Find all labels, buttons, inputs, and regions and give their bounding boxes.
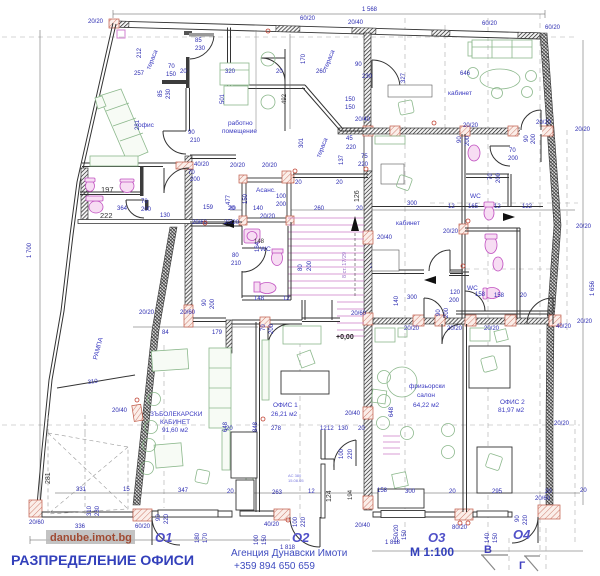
svg-text:150: 150 bbox=[262, 534, 268, 545]
svg-text:20/20: 20/20 bbox=[577, 319, 593, 325]
svg-text:327: 327 bbox=[401, 72, 407, 83]
svg-text:+359 894 650 659: +359 894 650 659 bbox=[234, 561, 315, 572]
svg-text:20: 20 bbox=[520, 293, 527, 299]
svg-text:20/20: 20/20 bbox=[224, 220, 240, 226]
svg-text:20/20: 20/20 bbox=[554, 421, 570, 427]
svg-text:179: 179 bbox=[212, 330, 223, 336]
svg-text:70: 70 bbox=[141, 199, 148, 205]
svg-text:130: 130 bbox=[338, 426, 349, 432]
svg-text:40/20: 40/20 bbox=[556, 324, 572, 330]
svg-text:331: 331 bbox=[76, 487, 87, 493]
svg-text:20: 20 bbox=[449, 489, 456, 495]
svg-text:помещение: помещение bbox=[222, 128, 257, 135]
svg-text:301: 301 bbox=[299, 137, 305, 148]
svg-text:20/20: 20/20 bbox=[443, 229, 459, 235]
svg-text:197: 197 bbox=[101, 185, 114, 194]
svg-text:150: 150 bbox=[166, 72, 177, 78]
svg-text:220: 220 bbox=[348, 448, 354, 459]
svg-text:40/20: 40/20 bbox=[264, 522, 280, 528]
svg-text:165: 165 bbox=[468, 204, 479, 210]
svg-text:80/20: 80/20 bbox=[452, 525, 468, 531]
svg-text:260: 260 bbox=[314, 206, 325, 212]
svg-text:60/20: 60/20 bbox=[300, 16, 316, 22]
svg-text:100: 100 bbox=[293, 516, 299, 527]
svg-text:130: 130 bbox=[160, 213, 171, 219]
svg-text:170: 170 bbox=[203, 532, 209, 543]
svg-text:90: 90 bbox=[457, 136, 463, 143]
svg-text:158: 158 bbox=[377, 488, 388, 494]
svg-text:230: 230 bbox=[195, 46, 206, 52]
svg-text:200: 200 bbox=[496, 172, 502, 183]
svg-text:О1: О1 bbox=[155, 530, 172, 545]
svg-text:150: 150 bbox=[345, 105, 356, 111]
svg-text:295: 295 bbox=[492, 489, 503, 495]
svg-text:90: 90 bbox=[515, 515, 521, 522]
svg-text:20/20: 20/20 bbox=[88, 19, 104, 25]
svg-text:26,21 м2: 26,21 м2 bbox=[271, 411, 298, 418]
svg-text:257: 257 bbox=[134, 71, 145, 77]
svg-text:15.08.05: 15.08.05 bbox=[288, 478, 304, 483]
svg-text:212: 212 bbox=[137, 47, 143, 58]
svg-text:15: 15 bbox=[123, 487, 130, 493]
svg-text:60/20: 60/20 bbox=[482, 21, 498, 27]
svg-text:В: В bbox=[484, 544, 492, 556]
svg-text:Асанс.: Асанс. bbox=[256, 187, 276, 194]
svg-text:91,60 м2: 91,60 м2 bbox=[162, 427, 189, 434]
svg-text:1 700: 1 700 bbox=[27, 242, 33, 258]
svg-text:124: 124 bbox=[326, 490, 333, 502]
svg-text:20/20: 20/20 bbox=[139, 310, 155, 316]
svg-text:200: 200 bbox=[531, 133, 537, 144]
svg-text:20/20: 20/20 bbox=[484, 326, 500, 332]
svg-text:20/20: 20/20 bbox=[575, 127, 591, 133]
svg-text:64,22 м2: 64,22 м2 bbox=[413, 402, 440, 409]
svg-text:20/20: 20/20 bbox=[260, 214, 276, 220]
svg-text:158: 158 bbox=[475, 292, 486, 298]
svg-text:220: 220 bbox=[346, 145, 357, 151]
svg-text:12: 12 bbox=[283, 296, 290, 302]
svg-text:О3: О3 bbox=[428, 530, 446, 545]
svg-text:90: 90 bbox=[188, 130, 195, 136]
svg-text:20: 20 bbox=[580, 488, 587, 494]
svg-text:158: 158 bbox=[494, 293, 505, 299]
svg-text:320: 320 bbox=[225, 69, 236, 75]
svg-text:20: 20 bbox=[276, 69, 283, 75]
svg-text:150: 150 bbox=[493, 532, 499, 543]
svg-text:1 568: 1 568 bbox=[362, 7, 378, 13]
svg-text:кабинет: кабинет bbox=[448, 89, 472, 97]
svg-text:200: 200 bbox=[444, 307, 450, 318]
svg-text:работно: работно bbox=[228, 119, 253, 127]
svg-text:848: 848 bbox=[253, 421, 259, 432]
svg-text:210: 210 bbox=[231, 261, 242, 267]
svg-text:194: 194 bbox=[348, 489, 354, 500]
svg-text:263: 263 bbox=[272, 490, 283, 496]
svg-text:кабинет: кабинет bbox=[396, 219, 420, 227]
svg-text:М 1:100: М 1:100 bbox=[410, 545, 454, 559]
svg-text:8 ст. 17/29: 8 ст. 17/29 bbox=[342, 252, 348, 278]
svg-text:70: 70 bbox=[168, 64, 175, 70]
svg-text:90: 90 bbox=[524, 135, 530, 142]
svg-text:20/60: 20/60 bbox=[535, 496, 551, 502]
svg-text:20: 20 bbox=[358, 426, 365, 432]
svg-text:220: 220 bbox=[164, 513, 170, 524]
svg-text:310: 310 bbox=[87, 505, 93, 516]
svg-text:20/20: 20/20 bbox=[262, 163, 278, 169]
svg-text:85: 85 bbox=[195, 38, 202, 44]
svg-text:60/20: 60/20 bbox=[135, 524, 151, 530]
svg-text:122: 122 bbox=[522, 204, 533, 210]
svg-text:159: 159 bbox=[203, 205, 214, 211]
svg-text:220: 220 bbox=[301, 516, 307, 527]
svg-text:ОФИС 2: ОФИС 2 bbox=[500, 399, 525, 406]
svg-text:170: 170 bbox=[301, 53, 307, 64]
svg-text:1 656: 1 656 bbox=[590, 280, 596, 296]
svg-text:81,97 м2: 81,97 м2 bbox=[498, 407, 525, 414]
svg-text:20/60: 20/60 bbox=[180, 310, 196, 316]
svg-text:90: 90 bbox=[156, 514, 162, 521]
svg-text:230: 230 bbox=[166, 88, 172, 99]
svg-text:12: 12 bbox=[494, 204, 501, 210]
svg-text:281: 281 bbox=[135, 119, 141, 130]
svg-text:648: 648 bbox=[389, 406, 395, 417]
svg-text:ЗЪБОЛЕКАРСКИ: ЗЪБОЛЕКАРСКИ bbox=[150, 411, 203, 418]
svg-text:20/20: 20/20 bbox=[447, 326, 463, 332]
svg-text:200: 200 bbox=[210, 298, 216, 309]
svg-text:150/20: 150/20 bbox=[394, 524, 400, 543]
svg-text:40/20: 40/20 bbox=[194, 162, 210, 168]
svg-text:300: 300 bbox=[405, 489, 416, 495]
svg-text:364: 364 bbox=[117, 206, 128, 212]
svg-text:281: 281 bbox=[45, 472, 52, 484]
svg-text:20: 20 bbox=[545, 489, 552, 495]
svg-text:WC: WC bbox=[260, 246, 271, 253]
svg-text:фризьорски: фризьорски bbox=[409, 383, 445, 390]
svg-text:20/40: 20/40 bbox=[355, 523, 371, 529]
svg-text:140: 140 bbox=[253, 206, 264, 212]
svg-text:230: 230 bbox=[362, 74, 373, 80]
svg-text:222: 222 bbox=[100, 211, 113, 220]
svg-text:90: 90 bbox=[436, 309, 442, 316]
svg-text:60/20: 60/20 bbox=[545, 25, 561, 31]
svg-text:20/20: 20/20 bbox=[576, 224, 592, 230]
svg-text:150: 150 bbox=[345, 97, 356, 103]
svg-text:WC: WC bbox=[470, 193, 481, 200]
svg-text:20/40: 20/40 bbox=[348, 20, 364, 26]
svg-text:140: 140 bbox=[485, 532, 491, 543]
svg-text:80: 80 bbox=[298, 264, 304, 271]
svg-text:20/20: 20/20 bbox=[536, 120, 552, 126]
svg-text:20/20: 20/20 bbox=[230, 163, 246, 169]
svg-text:О4: О4 bbox=[513, 527, 531, 542]
svg-text:12: 12 bbox=[448, 204, 455, 210]
svg-text:20/40: 20/40 bbox=[112, 408, 128, 414]
svg-text:45: 45 bbox=[346, 136, 353, 142]
svg-text:70: 70 bbox=[509, 148, 516, 154]
svg-text:220: 220 bbox=[523, 514, 529, 525]
svg-text:85: 85 bbox=[158, 90, 164, 97]
svg-text:90: 90 bbox=[355, 62, 362, 68]
svg-text:12: 12 bbox=[327, 426, 334, 432]
svg-text:20/20: 20/20 bbox=[463, 123, 479, 129]
svg-text:200: 200 bbox=[141, 207, 152, 213]
svg-text:WC: WC bbox=[467, 285, 478, 292]
svg-text:70: 70 bbox=[261, 324, 267, 331]
svg-text:80: 80 bbox=[232, 253, 239, 259]
svg-text:20: 20 bbox=[180, 69, 187, 75]
svg-text:20: 20 bbox=[227, 489, 234, 495]
svg-text:70: 70 bbox=[188, 170, 195, 176]
svg-text:84: 84 bbox=[162, 330, 169, 336]
svg-text:200: 200 bbox=[307, 260, 313, 271]
svg-text:180: 180 bbox=[195, 532, 201, 543]
svg-text:75: 75 bbox=[361, 154, 368, 160]
svg-text:492: 492 bbox=[282, 93, 288, 104]
svg-text:300: 300 bbox=[407, 201, 418, 207]
svg-text:РАЗПРЕДЕЛЕНИЕ ОФИСИ: РАЗПРЕДЕЛЕНИЕ ОФИСИ bbox=[11, 553, 194, 569]
svg-text:20/40: 20/40 bbox=[345, 411, 361, 417]
svg-text:200: 200 bbox=[465, 135, 471, 146]
svg-text:120: 120 bbox=[450, 290, 461, 296]
svg-text:КАБИНЕТ: КАБИНЕТ bbox=[160, 419, 190, 426]
svg-text:20: 20 bbox=[356, 206, 363, 212]
svg-text:140: 140 bbox=[394, 295, 400, 306]
svg-text:20/40: 20/40 bbox=[377, 235, 393, 241]
svg-text:20/20: 20/20 bbox=[404, 326, 420, 332]
svg-text:20: 20 bbox=[226, 426, 233, 432]
svg-text:20/60: 20/60 bbox=[351, 311, 367, 317]
svg-text:20: 20 bbox=[229, 206, 236, 212]
svg-text:150: 150 bbox=[402, 529, 408, 540]
svg-text:230: 230 bbox=[95, 505, 101, 516]
svg-text:20/60: 20/60 bbox=[29, 520, 45, 526]
svg-text:347: 347 bbox=[178, 488, 189, 494]
svg-text:100: 100 bbox=[339, 448, 345, 459]
svg-text:148: 148 bbox=[254, 296, 265, 302]
svg-text:ОФИС 1: ОФИС 1 bbox=[273, 402, 298, 409]
svg-text:Г: Г bbox=[519, 560, 526, 572]
svg-text:126: 126 bbox=[354, 190, 361, 202]
svg-text:210: 210 bbox=[190, 138, 201, 144]
svg-text:+0,00: +0,00 bbox=[336, 334, 354, 341]
svg-text:danube.imot.bg: danube.imot.bg bbox=[50, 532, 132, 544]
svg-text:164: 164 bbox=[255, 241, 261, 252]
svg-text:200: 200 bbox=[508, 156, 519, 162]
svg-text:100: 100 bbox=[254, 534, 260, 545]
svg-text:20: 20 bbox=[295, 180, 302, 186]
svg-text:200: 200 bbox=[190, 177, 201, 183]
svg-text:100: 100 bbox=[276, 194, 287, 200]
svg-text:646: 646 bbox=[460, 71, 471, 77]
svg-text:20: 20 bbox=[336, 180, 343, 186]
svg-text:477: 477 bbox=[226, 194, 232, 205]
svg-text:336: 336 bbox=[75, 524, 86, 530]
svg-text:12: 12 bbox=[308, 489, 315, 495]
svg-text:501: 501 bbox=[220, 93, 226, 104]
svg-text:О2: О2 bbox=[292, 530, 310, 545]
svg-text:150: 150 bbox=[243, 193, 249, 204]
svg-text:278: 278 bbox=[271, 426, 282, 432]
svg-text:90: 90 bbox=[202, 299, 208, 306]
svg-text:137: 137 bbox=[339, 154, 345, 165]
svg-text:70: 70 bbox=[488, 173, 494, 180]
svg-text:200: 200 bbox=[276, 202, 287, 208]
svg-text:20/40: 20/40 bbox=[355, 117, 371, 123]
svg-text:салон: салон bbox=[417, 392, 435, 399]
svg-text:260: 260 bbox=[316, 69, 327, 75]
svg-text:300: 300 bbox=[407, 295, 418, 301]
svg-text:200: 200 bbox=[269, 323, 275, 334]
svg-text:200: 200 bbox=[449, 298, 460, 304]
svg-text:Агенция Дунавски Имоти: Агенция Дунавски Имоти bbox=[231, 548, 347, 559]
